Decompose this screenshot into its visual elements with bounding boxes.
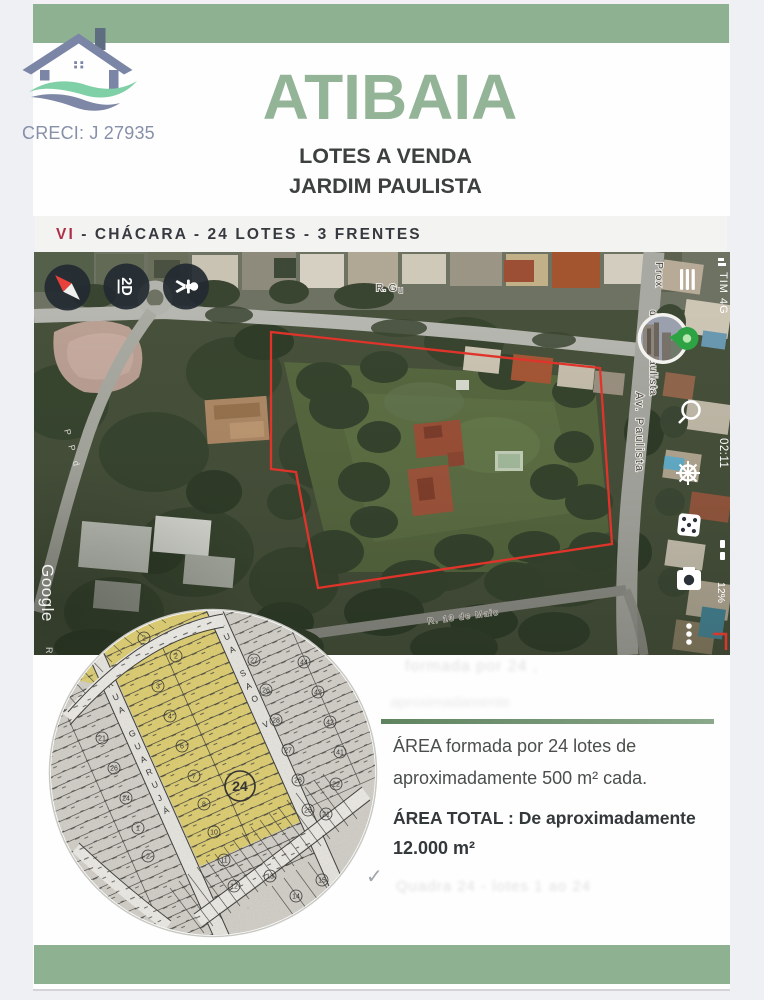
svg-text:R. G: R. G xyxy=(376,283,397,294)
svg-text:Prox: Prox xyxy=(653,262,665,288)
svg-text:u: u xyxy=(398,285,403,295)
svg-text:2D: 2D xyxy=(118,277,134,296)
svg-text:Av. Paulista: Av. Paulista xyxy=(633,392,645,473)
svg-text:12%: 12% xyxy=(715,582,727,603)
svg-text:TIM 4G: TIM 4G xyxy=(717,272,729,315)
svg-text:02:11: 02:11 xyxy=(717,438,729,468)
